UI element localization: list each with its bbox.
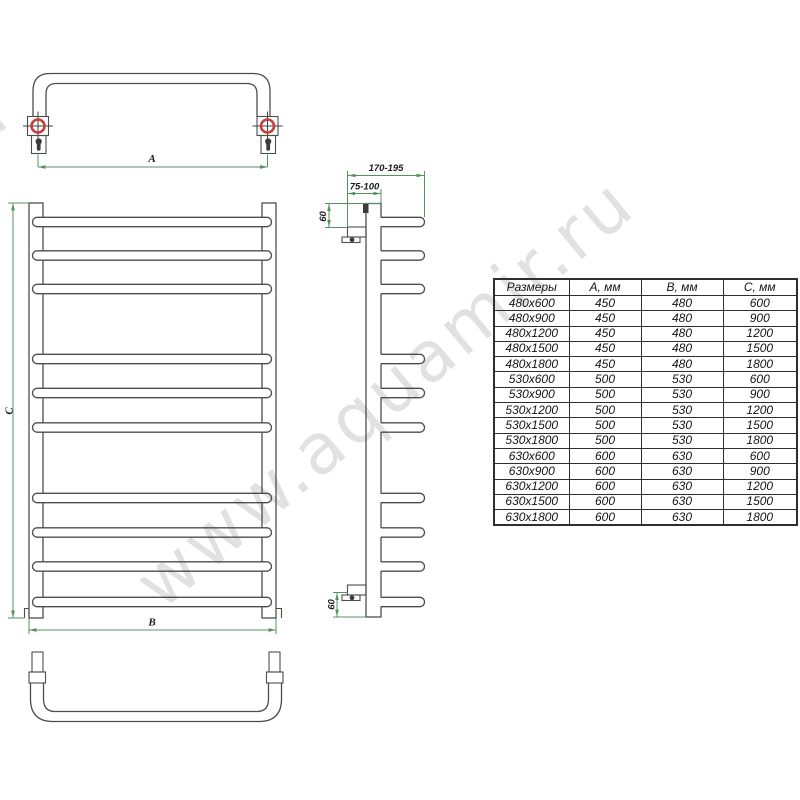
dimension-top-offset: 60 xyxy=(318,204,380,228)
front-view xyxy=(25,203,282,618)
table-row: 480х18004504801800 xyxy=(494,357,797,372)
table-row: 630х12006006301200 xyxy=(494,479,797,494)
size-cell: 480 xyxy=(641,296,723,311)
table-row: 480х15004504801500 xyxy=(494,341,797,356)
bottom-offset-label: 60 xyxy=(327,599,338,610)
size-table: Размеры А, мм В, мм С, мм 480х6004504806… xyxy=(493,278,798,526)
size-cell: 530 xyxy=(641,433,723,448)
size-cell: 1500 xyxy=(723,418,797,433)
size-cell: 500 xyxy=(569,403,641,418)
dimension-a: А xyxy=(38,153,268,169)
front-rungs xyxy=(33,217,272,606)
size-cell: 600 xyxy=(723,448,797,463)
size-cell: 450 xyxy=(569,326,641,341)
size-cell: 630 xyxy=(641,494,723,509)
size-cell: 450 xyxy=(569,341,641,356)
size-cell: 600 xyxy=(569,494,641,509)
size-cell: 1500 xyxy=(723,494,797,509)
dimension-standoff-range: 75-100 xyxy=(348,182,382,204)
size-cell: 1800 xyxy=(723,433,797,448)
size-cell: 600 xyxy=(723,372,797,387)
size-cell: 500 xyxy=(569,387,641,402)
towel-rail-drawing-page: А С В xyxy=(0,0,800,800)
size-cell: 500 xyxy=(569,433,641,448)
size-cell: 1200 xyxy=(723,326,797,341)
size-cell: 900 xyxy=(723,387,797,402)
dim-b-label: В xyxy=(147,617,155,629)
size-cell: 450 xyxy=(569,311,641,326)
size-cell: 1200 xyxy=(723,479,797,494)
size-cell: 630 xyxy=(641,479,723,494)
size-cell: 600 xyxy=(569,464,641,479)
table-row: 630х900600630900 xyxy=(494,464,797,479)
keyhole-slot-icon xyxy=(265,138,271,150)
top-view xyxy=(23,74,283,154)
size-cell: 630х600 xyxy=(494,448,569,463)
table-row: 630х600600630600 xyxy=(494,448,797,463)
table-row: 530х600500530600 xyxy=(494,372,797,387)
table-header-row: Размеры А, мм В, мм С, мм xyxy=(494,279,797,296)
depth-range-label: 170-195 xyxy=(369,163,405,174)
size-cell: 630х1500 xyxy=(494,494,569,509)
size-cell: 480х1800 xyxy=(494,357,569,372)
wall-bracket-top xyxy=(342,227,366,243)
size-cell: 1500 xyxy=(723,341,797,356)
dimension-b: В xyxy=(29,617,276,635)
size-cell: 480х600 xyxy=(494,296,569,311)
table-row: 480х12004504801200 xyxy=(494,326,797,341)
col-header-c: С, мм xyxy=(723,279,797,296)
size-cell: 480х1200 xyxy=(494,326,569,341)
dim-c-label: С xyxy=(4,407,16,415)
table-row: 530х15005005301500 xyxy=(494,418,797,433)
size-cell: 480 xyxy=(641,341,723,356)
size-cell: 630х1200 xyxy=(494,479,569,494)
table-row: 530х900500530900 xyxy=(494,387,797,402)
size-cell: 480х1500 xyxy=(494,341,569,356)
size-cell: 1200 xyxy=(723,403,797,418)
dimension-c: С xyxy=(4,203,30,618)
table-row: 530х12005005301200 xyxy=(494,403,797,418)
standoff-range-label: 75-100 xyxy=(350,182,380,193)
size-cell: 530х1800 xyxy=(494,433,569,448)
size-cell: 530х600 xyxy=(494,372,569,387)
size-cell: 630х1800 xyxy=(494,510,569,526)
size-cell: 500 xyxy=(569,372,641,387)
size-cell: 530 xyxy=(641,387,723,402)
top-offset-label: 60 xyxy=(318,211,329,222)
col-header-b: В, мм xyxy=(641,279,723,296)
col-header-sizes: Размеры xyxy=(494,279,569,296)
size-cell: 630х900 xyxy=(494,464,569,479)
size-cell: 480 xyxy=(641,311,723,326)
size-cell: 600 xyxy=(723,296,797,311)
col-header-a: А, мм xyxy=(569,279,641,296)
table-row: 480х900450480900 xyxy=(494,311,797,326)
size-cell: 530х900 xyxy=(494,387,569,402)
size-cell: 600 xyxy=(569,510,641,526)
size-cell: 480 xyxy=(641,357,723,372)
keyhole-slot-icon xyxy=(36,138,42,150)
size-cell: 900 xyxy=(723,464,797,479)
table-row: 480х600450480600 xyxy=(494,296,797,311)
size-cell: 530 xyxy=(641,372,723,387)
size-cell: 480х900 xyxy=(494,311,569,326)
size-cell: 1800 xyxy=(723,510,797,526)
table-row: 630х15006006301500 xyxy=(494,494,797,509)
size-cell: 450 xyxy=(569,357,641,372)
size-cell: 530 xyxy=(641,403,723,418)
size-cell: 530 xyxy=(641,418,723,433)
side-rungs xyxy=(377,217,425,606)
size-cell: 630 xyxy=(641,464,723,479)
dim-a-label: А xyxy=(147,153,155,165)
side-view xyxy=(342,204,425,618)
size-cell: 630 xyxy=(641,510,723,526)
size-cell: 630 xyxy=(641,448,723,463)
table-row: 630х18006006301800 xyxy=(494,510,797,526)
table-row: 530х18005005301800 xyxy=(494,433,797,448)
size-cell: 530х1500 xyxy=(494,418,569,433)
size-cell: 600 xyxy=(569,479,641,494)
size-cell: 1800 xyxy=(723,357,797,372)
bottom-view xyxy=(29,652,283,722)
size-cell: 480 xyxy=(641,326,723,341)
size-cell: 900 xyxy=(723,311,797,326)
size-cell: 600 xyxy=(569,448,641,463)
size-cell: 530х1200 xyxy=(494,403,569,418)
size-cell: 450 xyxy=(569,296,641,311)
size-cell: 500 xyxy=(569,418,641,433)
